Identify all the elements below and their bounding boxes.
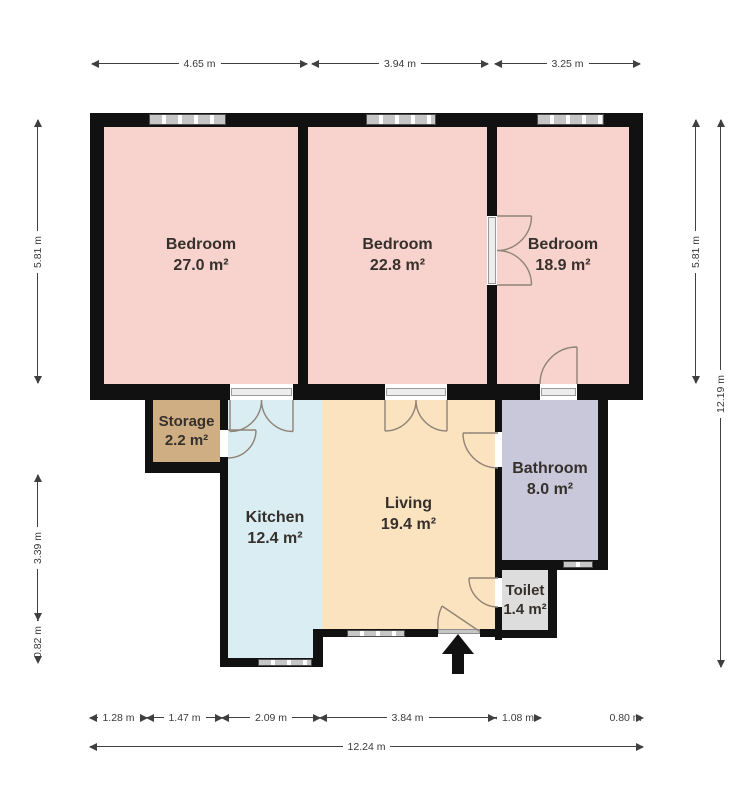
dimension-label: 3.39 m — [32, 526, 44, 568]
door-opening-living-bathroom — [495, 432, 502, 467]
dimension-bottom-2: 1.47 m — [147, 717, 222, 718]
entrance-arrow-icon — [442, 634, 474, 674]
wall-toilet-bottom — [495, 630, 557, 638]
window-bedroom-3 — [537, 114, 604, 125]
wall-bedroom1-bedroom2 — [298, 127, 308, 384]
dimension-top-2: 3.94 m — [312, 63, 488, 64]
room-bedroom-1: Bedroom27.0 m² — [104, 127, 298, 384]
room-bathroom: Bathroom8.0 m² — [502, 400, 598, 560]
entrance-threshold — [438, 629, 480, 634]
door-opening-bedroom2-living — [385, 384, 447, 400]
window-bedroom-2 — [366, 114, 436, 125]
wall-storage-bottom — [145, 462, 228, 473]
room-label: Bathroom8.0 m² — [512, 459, 588, 501]
dimension-label: 0.80 m — [604, 712, 646, 724]
dimension-label: 3.94 m — [379, 58, 421, 70]
door-opening-bedroom3-bathroom — [540, 384, 577, 400]
dimension-bottom-6: 0.80 m — [608, 717, 643, 718]
dimension-left-3: 0.82 m — [37, 620, 38, 663]
wall-right — [629, 113, 643, 400]
dimension-label: 2.09 m — [250, 712, 292, 724]
room-label: Bedroom18.9 m² — [528, 235, 598, 277]
room-label: Toilet1.4 m² — [503, 581, 546, 620]
dimension-label: 12.24 m — [343, 741, 391, 753]
floor-plan: Bedroom27.0 m² Bedroom22.8 m² Bedroom18.… — [0, 0, 730, 795]
dimension-label: 3.84 m — [386, 712, 428, 724]
dimension-label: 4.65 m — [178, 58, 220, 70]
room-living: Living19.4 m² — [322, 400, 495, 629]
wall-left — [90, 113, 104, 400]
room-bedroom-3: Bedroom18.9 m² — [497, 127, 629, 384]
dimension-right-inner: 5.81 m — [695, 120, 696, 383]
dimension-bottom-5: 1.08 m — [495, 717, 541, 718]
room-bedroom-2: Bedroom22.8 m² — [308, 127, 487, 384]
wall-toilet-right — [548, 570, 557, 638]
door-opening-bedroom1-kitchen — [230, 384, 293, 400]
dimension-label: 1.47 m — [163, 712, 205, 724]
dimension-left-1: 5.81 m — [37, 120, 38, 383]
window-kitchen — [258, 659, 312, 666]
dimension-left-2: 3.39 m — [37, 475, 38, 620]
dimension-label: 1.08 m — [497, 712, 539, 724]
dimension-label: 5.81 m — [32, 230, 44, 272]
dimension-label: 1.28 m — [97, 712, 139, 724]
room-kitchen: Kitchen12.4 m² — [228, 400, 322, 658]
wall-bathroom-right — [598, 400, 608, 570]
room-label: Bedroom22.8 m² — [362, 235, 432, 277]
dimension-bottom-total: 12.24 m — [90, 746, 643, 747]
window-bedroom-1 — [149, 114, 226, 125]
dimension-bottom-1: 1.28 m — [90, 717, 147, 718]
room-label: Kitchen12.4 m² — [246, 508, 305, 550]
door-opening-bedroom2-bedroom3 — [487, 216, 497, 285]
dimension-bottom-4: 3.84 m — [320, 717, 495, 718]
room-label: Storage2.2 m² — [159, 412, 215, 451]
dimension-bottom-3: 2.09 m — [222, 717, 320, 718]
door-opening-storage-kitchen — [220, 430, 228, 457]
dimension-right-outer: 12.19 m — [720, 120, 721, 667]
room-toilet: Toilet1.4 m² — [502, 570, 548, 630]
door-opening-living-toilet — [495, 578, 502, 607]
dimension-top-3: 3.25 m — [495, 63, 640, 64]
room-storage: Storage2.2 m² — [153, 400, 220, 462]
room-label: Living19.4 m² — [381, 494, 436, 536]
dimension-label: 12.19 m — [715, 370, 727, 418]
window-living — [347, 630, 405, 637]
dimension-label: 5.81 m — [690, 230, 702, 272]
room-label: Bedroom27.0 m² — [166, 235, 236, 277]
dimension-label: 3.25 m — [546, 58, 588, 70]
window-bathroom — [563, 561, 593, 568]
dimension-label: 0.82 m — [32, 620, 44, 662]
dimension-top-1: 4.65 m — [92, 63, 307, 64]
